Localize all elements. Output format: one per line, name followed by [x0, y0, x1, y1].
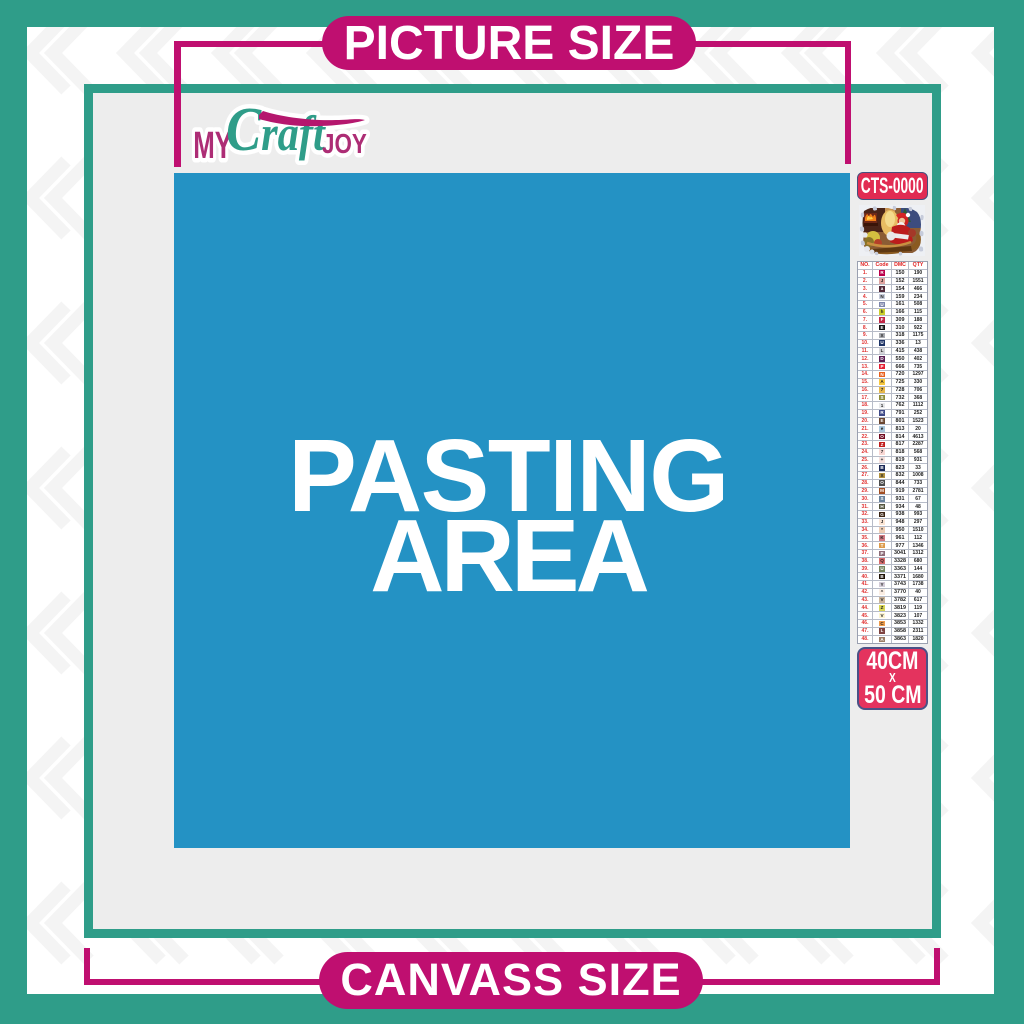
svg-text:Craft: Craft — [226, 96, 327, 164]
svg-text:JOY: JOY — [322, 129, 367, 160]
